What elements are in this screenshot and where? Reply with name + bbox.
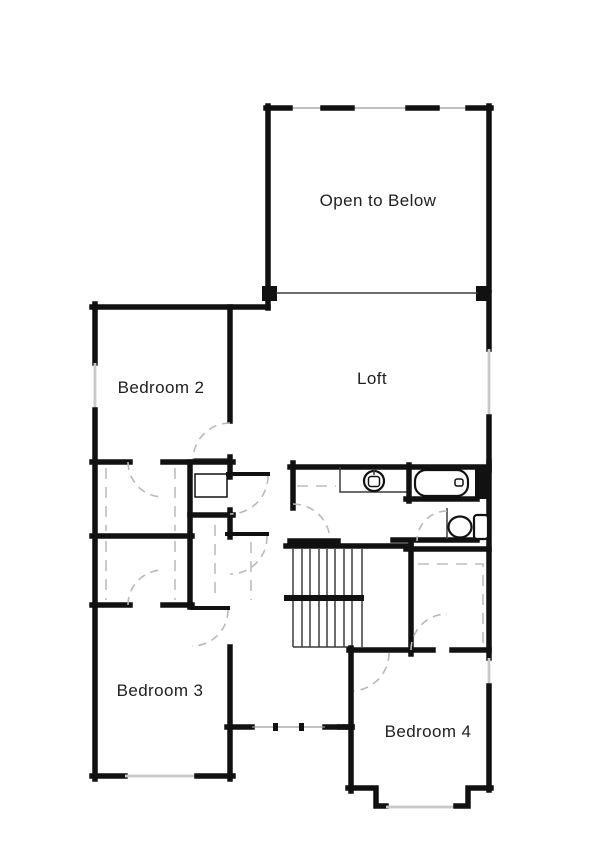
closet2-door-swing — [128, 570, 163, 605]
bedroom3-door-swing — [192, 610, 228, 646]
closet1-door-swing — [128, 462, 163, 497]
hall-door-swing-lower — [230, 536, 267, 574]
room-label-loft: Loft — [357, 369, 387, 388]
corner-post — [262, 286, 277, 301]
hall-closet-walls — [92, 457, 268, 607]
room-label-open-to-below: Open to Below — [320, 191, 437, 210]
floor-plan-drawing: Open to Below Loft Bedroom 2 Bedroom 3 B… — [0, 0, 608, 861]
toilet-icon — [449, 515, 489, 539]
room-label-bedroom-2: Bedroom 2 — [118, 378, 205, 397]
hall-door-swing-upper — [230, 476, 268, 514]
bedroom2-door-swing — [193, 423, 230, 460]
room-label-bedroom-3: Bedroom 3 — [117, 681, 204, 700]
bathroom-door-swing — [293, 504, 330, 541]
sink-icon — [364, 470, 384, 491]
linen-cabinet-icon — [195, 474, 227, 497]
floor-plan: Open to Below Loft Bedroom 2 Bedroom 3 B… — [0, 0, 608, 861]
bathtub-icon — [415, 470, 468, 496]
bedroom4-closet-dashes — [418, 564, 483, 645]
staircase-icon — [284, 543, 411, 654]
bedroom4-door-swing — [351, 653, 389, 691]
room-label-bedroom-4: Bedroom 4 — [385, 722, 472, 741]
toilet-door-swing — [417, 511, 447, 541]
bedroom4-closet-door-swing — [411, 614, 447, 650]
